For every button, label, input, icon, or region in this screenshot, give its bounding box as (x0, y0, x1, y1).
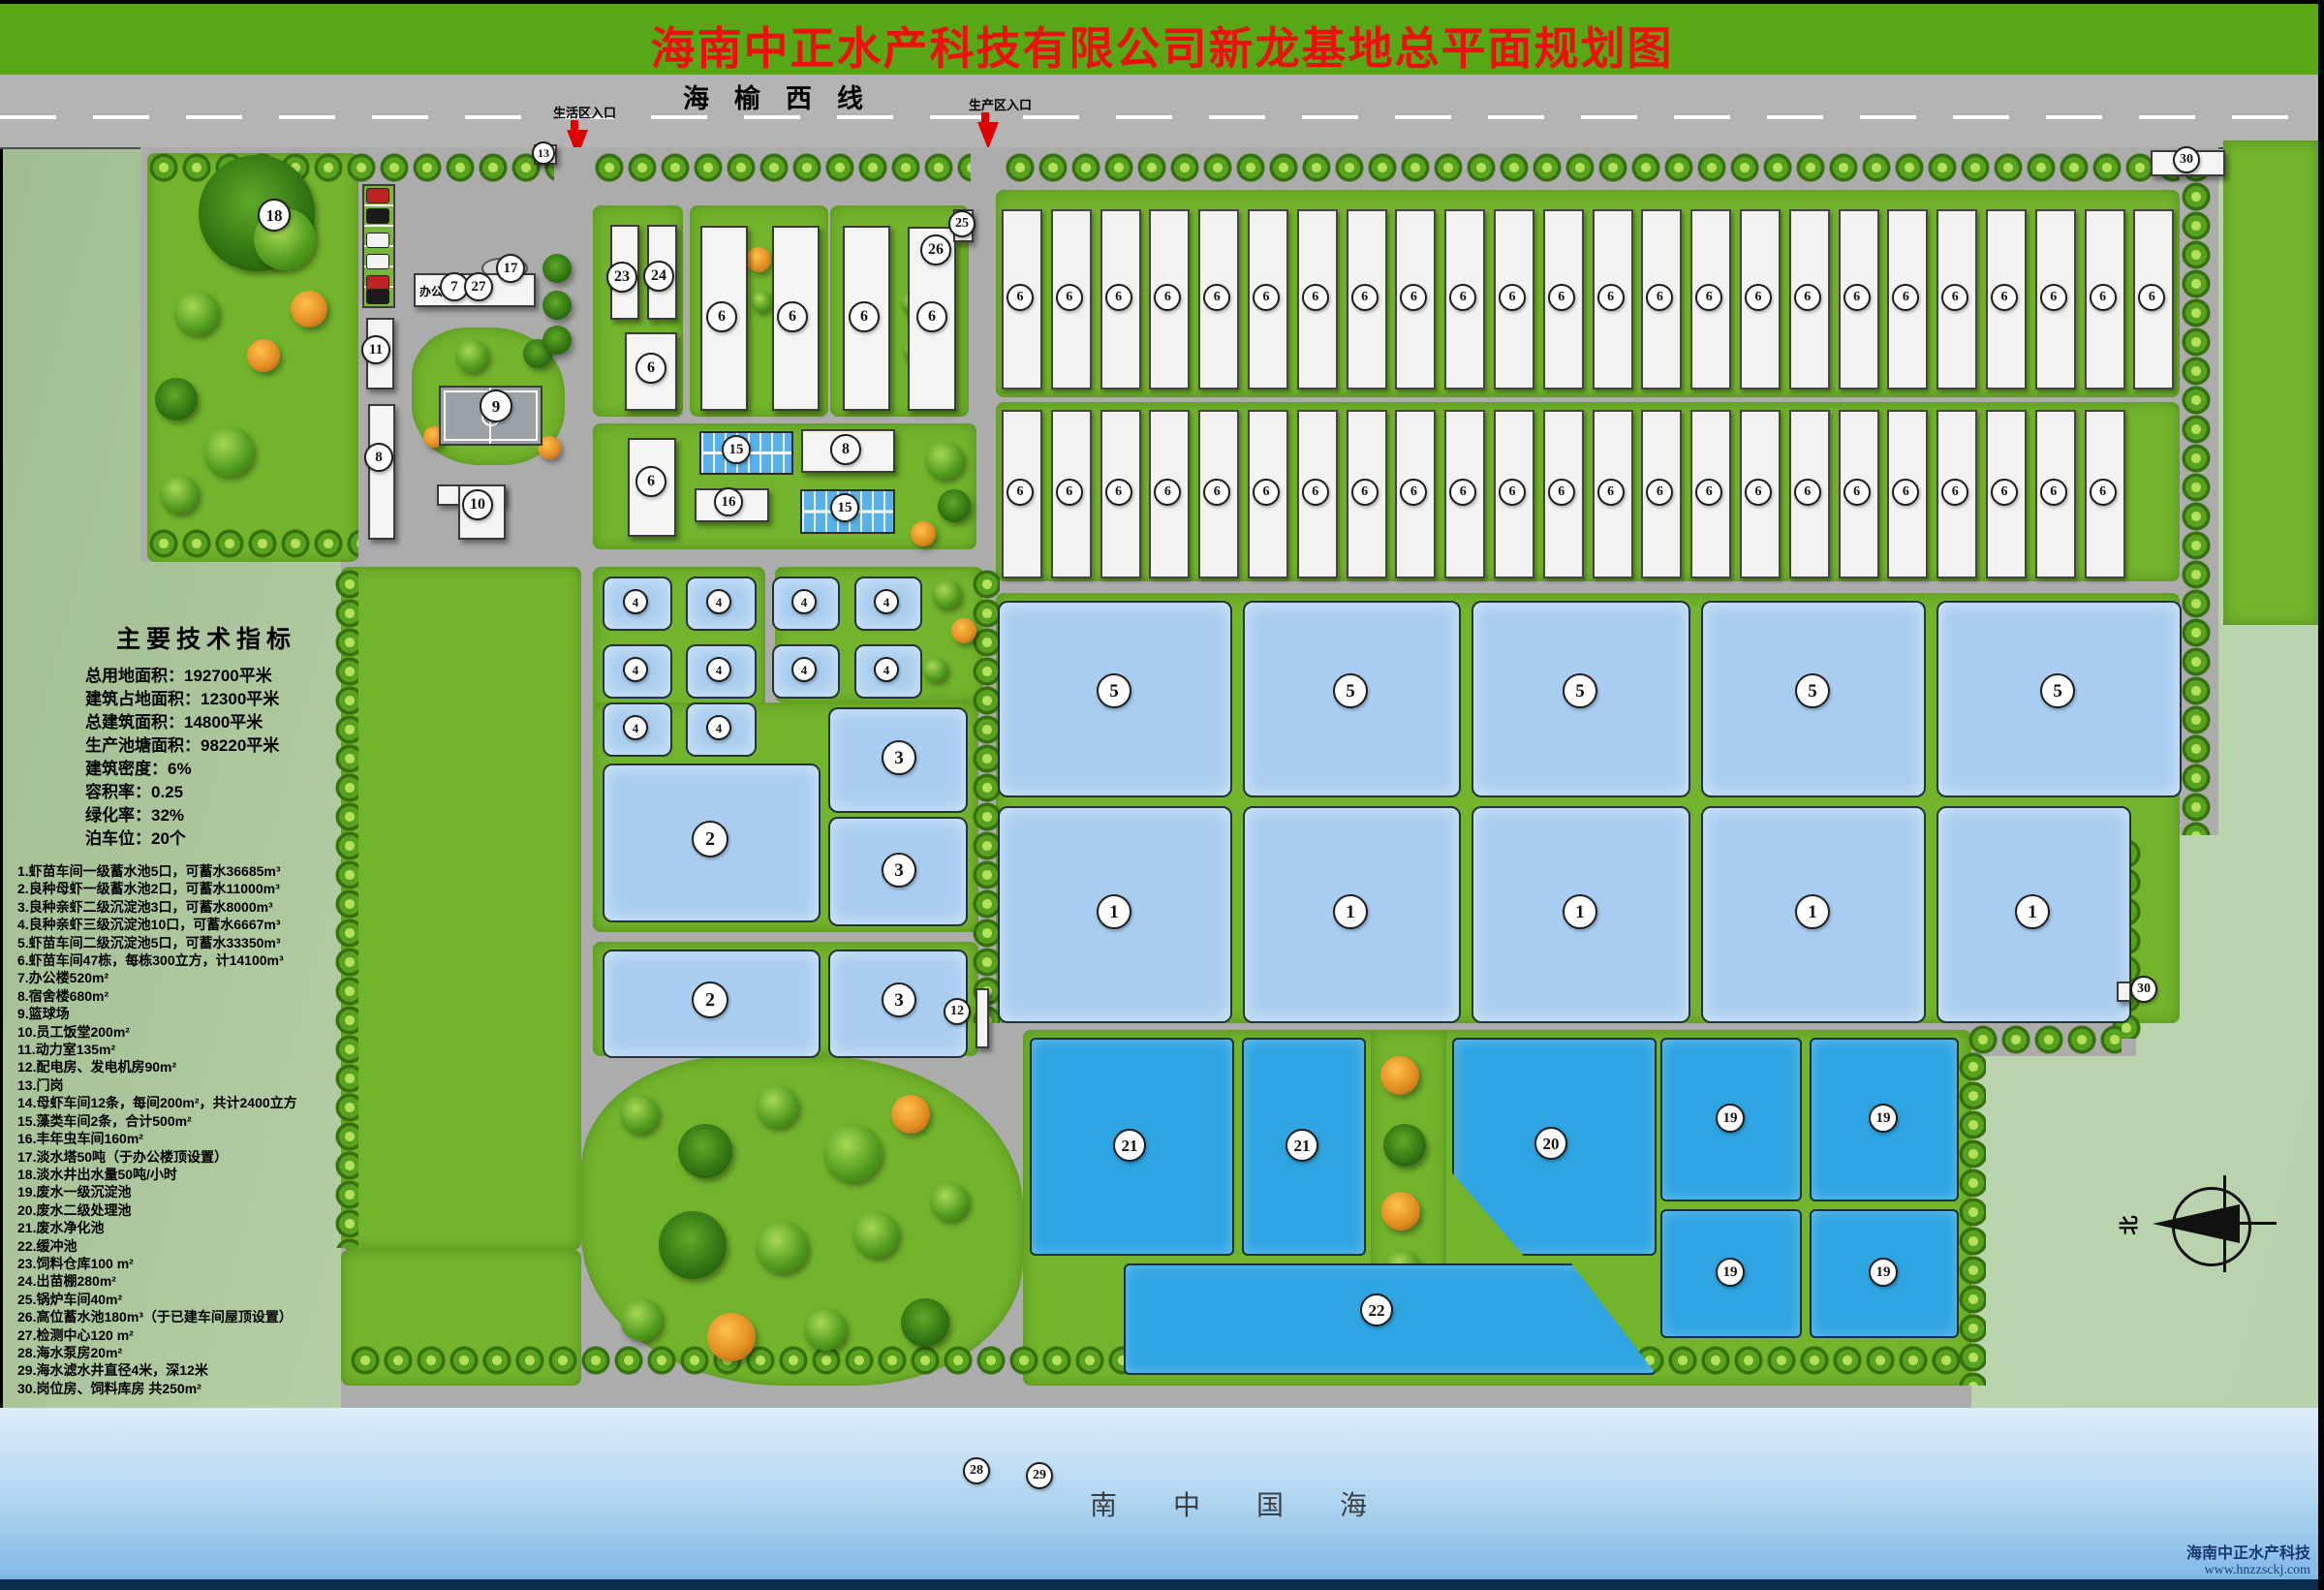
tree (620, 1298, 663, 1341)
indicator-row: 建筑占地面积：12300平米 (85, 688, 279, 711)
tree-row-top-east (1004, 151, 2180, 184)
hatchery-building (625, 332, 677, 411)
highway-road (0, 75, 2324, 149)
hatchery-strip-building (1051, 410, 1092, 578)
site-plan-canvas: 海南中正水产科技有限公司新龙基地总平面规划图 海榆西线 生活区入口 生产区入口 (0, 0, 2324, 1590)
legend-item: 2.良种母虾一级蓄水池2口，可蓄水11000m³ (17, 880, 297, 897)
tree (751, 291, 772, 312)
pond-4 (854, 577, 922, 631)
hatchery-strip-building (2085, 410, 2125, 578)
tree (174, 291, 219, 335)
hatchery-strip-building (2085, 209, 2125, 390)
court-center-circle (481, 407, 501, 426)
pond-1-1 (998, 806, 1232, 1023)
tree (823, 1124, 882, 1182)
tree (1381, 1192, 1420, 1231)
canteen-building (458, 484, 506, 540)
indicators-list: 总用地面积：192700平米建筑占地面积：12300平米总建筑面积：14800平… (85, 665, 279, 851)
hatchery-strip-building (1198, 209, 1239, 390)
pond-4 (686, 644, 757, 699)
pond-22 (1124, 1263, 1657, 1375)
compass-north-label: 北 (2114, 1216, 2142, 1235)
hatchery-strip-building (1248, 209, 1288, 390)
hatchery-strip-building (1740, 209, 1781, 390)
legend-item: 22.缓冲池 (17, 1237, 297, 1255)
hatchery-strip-building (1887, 209, 1928, 390)
tree (620, 1095, 659, 1134)
pond-19 (1660, 1038, 1802, 1201)
hatchery-strip-building (1444, 410, 1485, 578)
legend-item: 12.配电房、发电机房90m² (17, 1058, 297, 1076)
palm-tree (542, 291, 572, 320)
legend-item: 3.良种亲虾二级沉淀池3口，可蓄水8000m³ (17, 898, 297, 916)
hatchery-strip-building (1002, 410, 1042, 578)
watermark-url: www.hnzzsckj.com (2186, 1563, 2310, 1578)
tree (756, 1221, 808, 1273)
legend-item: 30.岗位房、饲料库房 共250m² (17, 1380, 297, 1397)
pond-4 (686, 577, 757, 631)
hatchery-strip-building (1839, 410, 1879, 578)
pond-5-4 (1701, 601, 1926, 797)
page-title: 海南中正水产科技有限公司新龙基地总平面规划图 (651, 14, 1674, 78)
legend-item: 27.检测中心120 m² (17, 1326, 297, 1344)
image-right-border (2318, 0, 2324, 1590)
tree (1380, 1056, 1419, 1095)
tree-row-top-mid (593, 151, 971, 184)
tree (254, 208, 316, 270)
hatchery-strip-building (1198, 410, 1239, 578)
pond-3-upper (828, 707, 968, 813)
pond-4 (686, 702, 757, 757)
pond-1-3 (1472, 806, 1690, 1023)
tree (891, 1095, 930, 1134)
hatchery-strip-building (1593, 209, 1633, 390)
legend-item: 10.员工饭堂200m² (17, 1023, 297, 1041)
hatchery-strip-building (1740, 410, 1781, 578)
pond-19 (1810, 1209, 1959, 1338)
gatehouse-building (534, 144, 557, 165)
east-green-field (2223, 140, 2319, 625)
pond-3-lower (828, 950, 968, 1058)
tree (922, 657, 947, 682)
tree (160, 475, 199, 514)
hatchery-strip-building (1494, 410, 1534, 578)
panel-hatchery-row2 (996, 402, 2180, 581)
hatchery-building (843, 226, 890, 411)
hatchery-strip-building (1297, 410, 1338, 578)
watermark: 海南中正水产科技 www.hnzzsckj.com (2186, 1540, 2310, 1578)
pond-4 (603, 644, 672, 699)
hatchery-strip-building (1887, 410, 1928, 578)
panel-broodstock-block (341, 567, 581, 1250)
tree-col-east-upper (2182, 153, 2216, 835)
legend-item: 15.藻类车间2条，合计500m² (17, 1112, 297, 1130)
hatchery-strip-building (1395, 209, 1436, 390)
tree (203, 426, 254, 477)
pond-1-4 (1701, 806, 1926, 1023)
watermark-company: 海南中正水产科技 (2186, 1540, 2310, 1563)
hatchery-strip-building (1937, 410, 1977, 578)
tree (707, 1313, 756, 1361)
hatchery-strip-building (1937, 209, 1977, 390)
legend-item: 25.锅炉车间40m² (17, 1291, 297, 1308)
indicator-row: 建筑密度：6% (85, 758, 279, 781)
tree (455, 339, 488, 372)
hatchery-strip-building (2035, 209, 2076, 390)
hatchery-strip-building (1543, 209, 1584, 390)
road-center-dashline (0, 115, 2324, 119)
power-room-building (366, 318, 394, 390)
hatchery-strip-building (1986, 410, 2027, 578)
hatchery-building (628, 438, 676, 537)
tree (291, 291, 327, 327)
algae-tank-row (800, 489, 895, 534)
hatchery-strip-building (1494, 209, 1534, 390)
road-name: 海榆西线 (683, 78, 888, 115)
car-icon (366, 254, 389, 269)
tree (951, 618, 976, 643)
tree (804, 1308, 847, 1351)
tree (911, 521, 936, 546)
tree (930, 1182, 969, 1221)
legend-item: 24.出苗棚280m² (17, 1272, 297, 1290)
legend-item: 29.海水滤水井直径4米，深12米 (17, 1361, 297, 1379)
tree-col-broodstock-west (335, 570, 358, 1248)
entrance-living-label: 生活区入口 (553, 103, 616, 121)
legend-item: 18.淡水井出水量50吨/小时 (17, 1166, 297, 1183)
guard-post-building (2117, 982, 2131, 1002)
office-building: 办公楼 (414, 273, 536, 307)
hatchery-strip-building (1444, 209, 1485, 390)
legend-item: 7.办公楼520m² (17, 969, 297, 986)
hatchery-strip-building (1051, 209, 1092, 390)
legend-item: 4.良种亲虾三级沉淀池10口，可蓄水6667m³ (17, 916, 297, 933)
sea-name: 南中国海 (1090, 1484, 1423, 1523)
legend-list: 1.虾苗车间一级蓄水池5口，可蓄水36685m³2.良种母虾一级蓄水池2口，可蓄… (17, 862, 297, 1397)
pond-2-lower (603, 950, 821, 1058)
generator-room-building (976, 988, 989, 1048)
legend-item: 9.篮球场 (17, 1005, 297, 1022)
hatchery-strip-building (1690, 209, 1731, 390)
hatchery-strip-building (1248, 410, 1288, 578)
indicator-row: 总建筑面积：14800平米 (85, 711, 279, 734)
pond-4 (854, 644, 922, 699)
legend-item: 28.海水泵房20m² (17, 1344, 297, 1361)
legend-item: 14.母虾车间12条，每间200m²，共计2400立方 (17, 1094, 297, 1111)
indicator-row: 泊车位：20个 (85, 827, 279, 851)
hatchery-strip-building (1593, 410, 1633, 578)
car-icon (366, 233, 389, 248)
feed-warehouse-building (610, 225, 639, 320)
legend-item: 20.废水二级处理池 (17, 1201, 297, 1219)
car-icon (366, 188, 389, 203)
tree (901, 1298, 949, 1347)
indicator-row: 绿化率：32% (85, 804, 279, 827)
tree (659, 1211, 727, 1279)
car-icon (366, 208, 389, 224)
tree (932, 579, 961, 608)
pond-3-mid (828, 817, 968, 926)
algae-tank-row (699, 431, 793, 475)
pond-5-1 (998, 601, 1232, 797)
tree (746, 247, 771, 272)
hatchery-strip-building (1839, 209, 1879, 390)
indicator-row: 生产池塘面积：98220平米 (85, 734, 279, 758)
pond-4 (603, 577, 672, 631)
indicator-row: 容积率：0.25 (85, 781, 279, 804)
pond-1-5 (1937, 806, 2131, 1023)
panel-hatchery-row1 (996, 190, 2180, 397)
hatchery-strip-building (1149, 410, 1190, 578)
tree-col-east-lower (1959, 1052, 1986, 1386)
hatchery-strip-building (1347, 209, 1387, 390)
entrance-production-arrow-icon (977, 122, 999, 149)
legend-item: 23.饲料仓库100 m² (17, 1255, 297, 1272)
tree (925, 441, 964, 480)
hatchery-strip-building (1543, 410, 1584, 578)
pond-21-small (1242, 1038, 1366, 1256)
legend-item: 13.门岗 (17, 1076, 297, 1094)
tree (1383, 1124, 1426, 1167)
hatchery-strip-building (1002, 209, 1042, 390)
tree (678, 1124, 732, 1178)
entrance-production-label: 生产区入口 (969, 95, 1032, 113)
hatchery-strip-building (1641, 410, 1682, 578)
indicators-title: 主要技术指标 (116, 620, 296, 655)
pond-19 (1660, 1209, 1802, 1338)
pond-5-2 (1243, 601, 1461, 797)
tree (756, 1085, 798, 1128)
dormitory-building-2 (801, 429, 895, 473)
legend-item: 17.淡水塔50吨（于办公楼顶设置） (17, 1148, 297, 1166)
legend-item: 8.宿舍楼680m² (17, 987, 297, 1005)
hatchery-strip-building (1347, 410, 1387, 578)
pond-1-2 (1243, 806, 1461, 1023)
hatchery-strip-building (1100, 410, 1141, 578)
hatchery-strip-building (1395, 410, 1436, 578)
hatchery-strip-building (1690, 410, 1731, 578)
pond-4 (603, 702, 672, 757)
tree-col-central-road (973, 570, 1000, 1023)
hatchery-building (772, 226, 820, 411)
fry-shed-building (647, 225, 677, 320)
indicator-row: 总用地面积：192700平米 (85, 665, 279, 688)
pond-5-3 (1472, 601, 1690, 797)
hatchery-strip-building (1789, 410, 1830, 578)
legend-item: 11.动力室135m² (17, 1041, 297, 1058)
guard-feed-store-building (2151, 150, 2225, 176)
tree (938, 489, 971, 522)
legend-item: 6.虾苗车间47栋，每栋300立方，计14100m³ (17, 951, 297, 969)
hatchery-strip-building (1986, 209, 2027, 390)
legend-item: 19.废水一级沉淀池 (17, 1183, 297, 1200)
hatchery-building (700, 226, 748, 411)
tree-row-east-step (1967, 1023, 2122, 1054)
hatchery-strip-building (1297, 209, 1338, 390)
hatchery-strip-building (2035, 410, 2076, 578)
legend-item: 1.虾苗车间一级蓄水池5口，可蓄水36685m³ (17, 862, 297, 880)
hatchery-strip-building (1149, 209, 1190, 390)
pond-19 (1810, 1038, 1959, 1201)
hatchery-strip-building (1789, 209, 1830, 390)
tree (155, 378, 198, 421)
tree (852, 1211, 899, 1258)
boiler-room-building (953, 209, 974, 242)
pond-4 (772, 577, 840, 631)
tree (247, 339, 280, 372)
hatchery-strip-building (2133, 209, 2174, 390)
pond-4 (772, 644, 840, 699)
pond-2-upper (603, 764, 821, 922)
legend-item: 5.虾苗车间二级沉淀池5口，可蓄水33350m³ (17, 934, 297, 951)
office-building-label: 办公楼 (419, 283, 454, 299)
car-icon (366, 289, 389, 304)
pond-5-5 (1937, 601, 2182, 797)
basketball-court (439, 386, 542, 446)
legend-item: 16.丰年虫车间160m² (17, 1130, 297, 1147)
brine-shrimp-building (695, 488, 769, 522)
tree-row-forest-south (147, 527, 358, 560)
dormitory-building (368, 404, 395, 540)
sea-bottom-edge (0, 1579, 2324, 1590)
hatchery-strip-building (1100, 209, 1141, 390)
pond-21-large (1030, 1038, 1234, 1256)
hatchery-building (908, 227, 956, 411)
legend-item: 21.废水净化池 (17, 1219, 297, 1236)
palm-tree (542, 254, 572, 283)
palm-tree (542, 326, 572, 355)
hatchery-strip-building (1641, 209, 1682, 390)
legend-item: 26.高位蓄水池180m³（于已建车间屋顶设置） (17, 1308, 297, 1325)
